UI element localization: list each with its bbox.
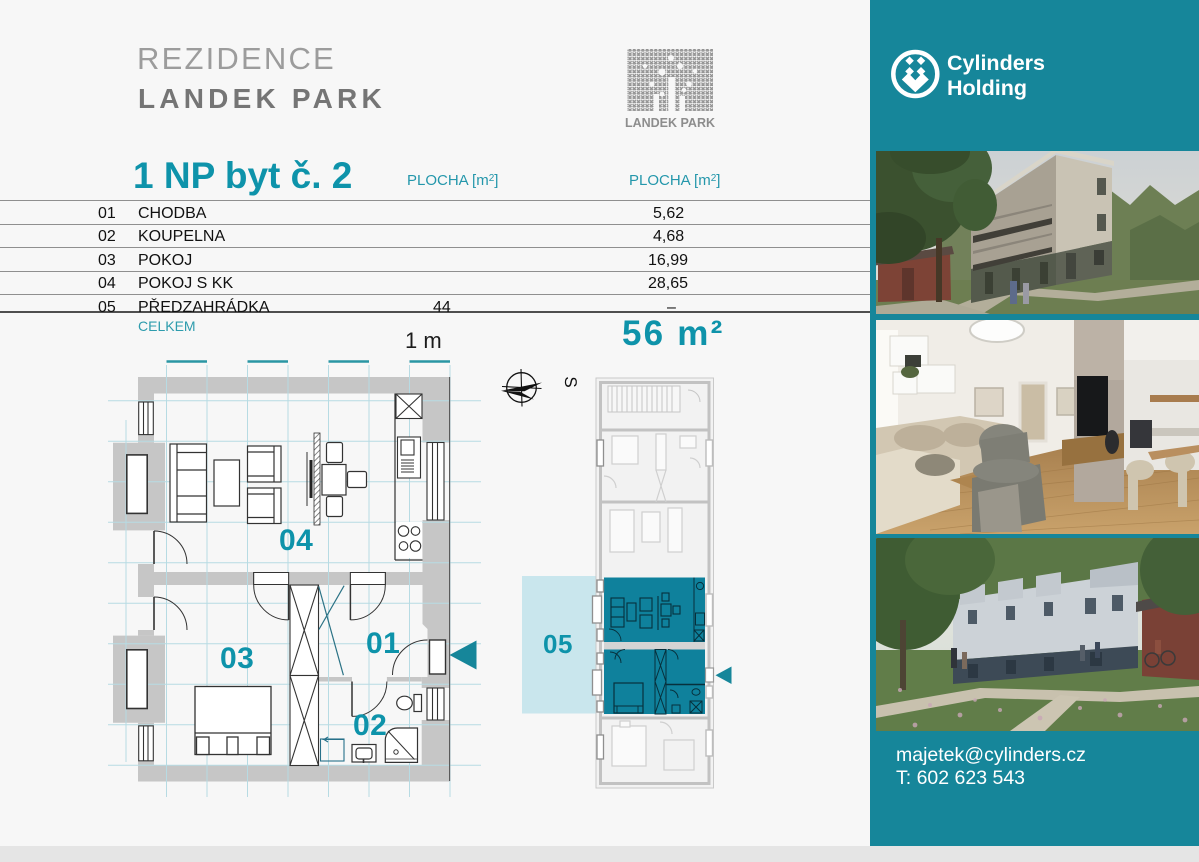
svg-text:S: S xyxy=(561,376,580,387)
